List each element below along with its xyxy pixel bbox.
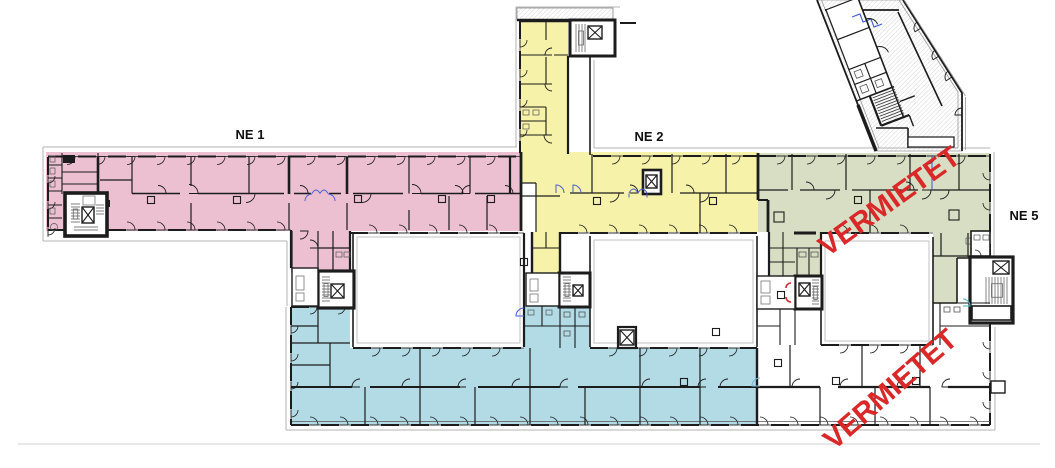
svg-text:NE 5: NE 5 (1010, 208, 1039, 223)
svg-text:NE 1: NE 1 (236, 127, 265, 142)
svg-text:NE 2: NE 2 (635, 129, 664, 144)
